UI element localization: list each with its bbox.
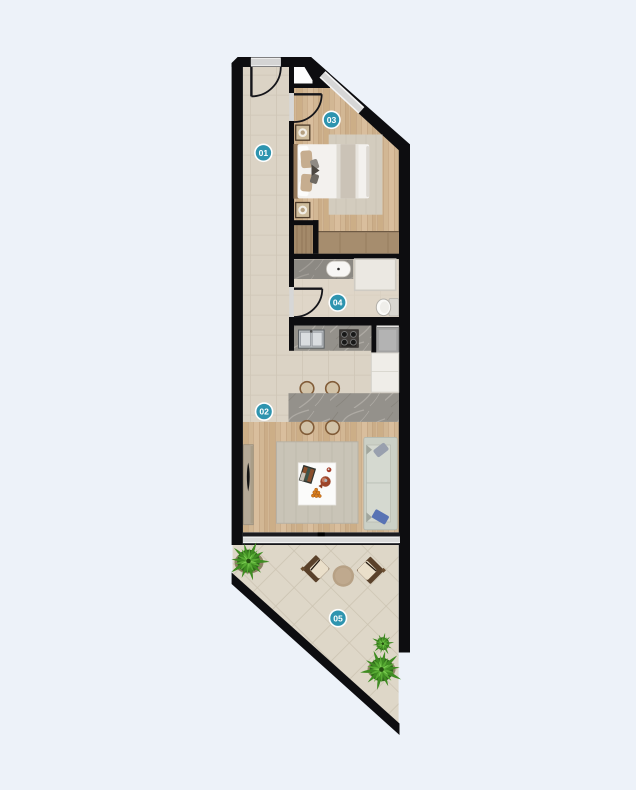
svg-text:02: 02 [259,407,269,417]
svg-text:01: 01 [259,148,269,158]
svg-text:05: 05 [333,613,343,623]
svg-text:03: 03 [327,115,337,125]
svg-text:04: 04 [333,298,343,308]
